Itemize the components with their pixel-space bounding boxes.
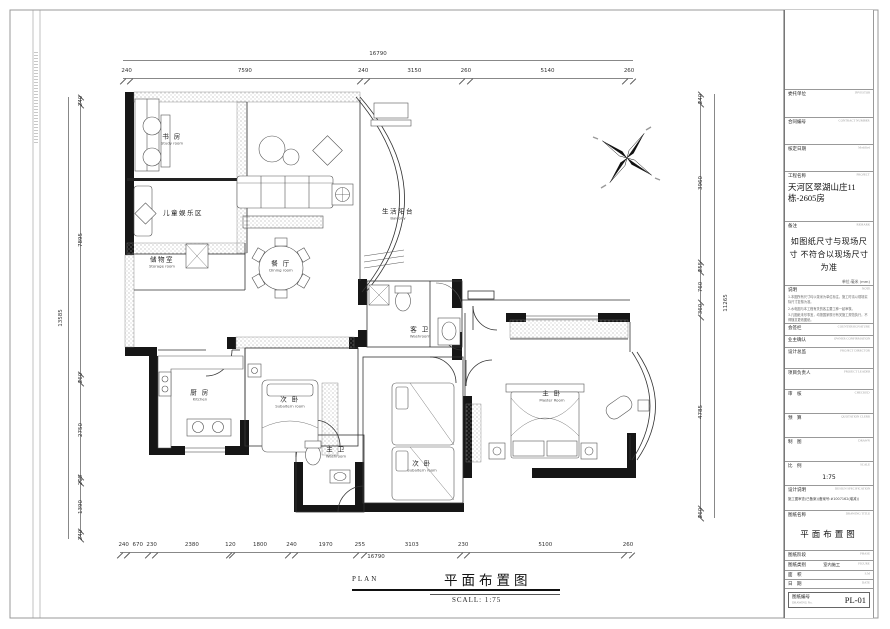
dimension-value: 230 <box>458 542 469 548</box>
dimension-value: 1800 <box>253 542 267 548</box>
drawn-label-en: DRAWN <box>858 439 870 443</box>
drawing-number-value: PL-01 <box>845 595 866 605</box>
title-block-investor: 委托单位 INVESTOR <box>785 89 873 117</box>
quotation-label-cn: 预 算 <box>788 415 802 421</box>
dimension-value: 240 <box>121 68 132 74</box>
number-label-cn: 图纸编号 <box>792 595 815 601</box>
footer-drawing-title: 平面布置图 <box>444 569 532 589</box>
dimension-value: 255 <box>355 542 366 548</box>
footer-plan-label: PLAN <box>352 575 378 583</box>
project-label-cn: 工程名称 <box>788 173 806 179</box>
footer-scale: SCALL: 1:75 <box>452 596 501 604</box>
contract-label-cn: 合同编号 <box>788 119 806 125</box>
director-label-en: PROJECT DIRECTOR <box>840 349 870 353</box>
note-label-en: NOTE <box>862 287 870 291</box>
dimension-value: 360 <box>698 304 704 315</box>
dimension-value: 670 <box>132 542 143 548</box>
margin-copyright-note <box>34 52 38 144</box>
checked-label-cn: 审 核 <box>788 391 802 397</box>
title-block-contract: 合同编号 CONTRACT NUMBER <box>785 117 873 144</box>
furniture <box>134 99 649 500</box>
design-spec-label-en: DESIGN SPECIFICATION <box>835 487 870 491</box>
drawing-title-label-cn: 图纸名称 <box>788 512 806 518</box>
drawing-sheet: 书 房 Study room 儿童娱乐区 储物室 Storage room 餐 … <box>0 0 890 629</box>
dimension-value: 3960 <box>698 176 704 190</box>
contract-label-en: CONTRACT NUMBER <box>839 119 870 123</box>
dimension-total-bottom: 16790 <box>120 554 632 560</box>
note-line-1: 1.本图所有尺寸均以毫米为单位标注，施工时请以现场实际尺寸复核为准。 <box>788 295 870 305</box>
remark-label-cn: 备注 <box>788 223 797 229</box>
dimension-value: 760 <box>698 282 704 293</box>
design-spec-value: 施工图审查(已备案)(备案号:#1007162(增减)) <box>788 496 870 501</box>
owner-label-en: OWNER CONFIRMATION <box>834 337 870 341</box>
title-block-remark: 备注 REMARK 如图纸尺寸与现场尺寸 不符合以现场尺寸为准 单位:毫米 (m… <box>785 221 873 285</box>
drawing-title-label-en: DRAWING TITLE <box>846 512 870 516</box>
leader-label-cn: 项目负责人 <box>788 370 811 376</box>
dimension-value: 240 <box>78 96 84 107</box>
note-label-cn: 说明 <box>788 287 797 293</box>
dimension-value: 260 <box>461 68 472 74</box>
dimension-line-top-total <box>123 60 633 61</box>
title-block-area: 面 积 S.M <box>785 570 873 579</box>
category-value: 室内施工 <box>823 562 840 568</box>
floor-plan-drawing <box>0 0 890 629</box>
dimension-value: 240 <box>118 542 129 548</box>
dimension-row-bottom: 2406702302380120180024019702553103230510… <box>120 540 632 553</box>
modified-label-cn: 核定日期 <box>788 146 806 152</box>
dimension-value: 260 <box>624 68 635 74</box>
dimension-line-left-total <box>68 97 69 539</box>
dimension-value: 1390 <box>78 500 84 514</box>
number-label-en: DRAWING No. <box>792 601 812 605</box>
drawing-number-box: 图纸编号 DRAWING No. PL-01 <box>788 592 870 608</box>
title-block-countersign: 会签栏 COUNTERSIGNATURE <box>785 323 873 335</box>
dimension-value: 205 <box>78 475 84 486</box>
dimension-value: 260 <box>623 542 634 548</box>
dimension-row-right: 24039602557603604785260 <box>700 94 713 518</box>
title-block-director: 设计总监 PROJECT DIRECTOR <box>785 347 873 368</box>
dimension-value: 120 <box>225 542 236 548</box>
dimension-value: 4785 <box>698 405 704 419</box>
area-label-en: S.M <box>865 572 870 576</box>
title-block-leader: 项目负责人 PROJECT LEADER <box>785 368 873 389</box>
title-block-project: 工程名称 PROJECT 天河区翠湖山庄11栋-2605房 <box>785 171 873 221</box>
dimension-value: 260 <box>698 508 704 519</box>
title-block-drawn: 制 图 DRAWN <box>785 437 873 461</box>
title-block-modified: 核定日期 Modified <box>785 144 873 171</box>
design-spec-label-cn: 设计说明 <box>788 487 806 493</box>
dimension-value: 7590 <box>238 68 252 74</box>
footer-rule-thick <box>352 589 560 591</box>
area-label-cn: 面 积 <box>788 572 802 578</box>
title-block-spacer <box>785 10 873 89</box>
scale-label-en: SCALE <box>860 463 870 467</box>
title-block-drawing-title: 图纸名称 DRAWING TITLE 平面布置图 <box>785 510 873 550</box>
checked-label-en: CHECKED <box>855 391 870 395</box>
project-label-en: PROJECT <box>857 173 870 177</box>
dimension-value: 1970 <box>319 542 333 548</box>
dimension-total-top: 16790 <box>123 51 633 57</box>
investor-label-en: INVESTOR <box>854 91 870 95</box>
dimension-value: 240 <box>286 542 297 548</box>
title-block-phase: 图纸阶段 PHASE <box>785 550 873 560</box>
title-block-note: 说明 NOTE 1.本图所有尺寸均以毫米为单位标注，施工时请以现场实际尺寸复核为… <box>785 285 873 323</box>
owner-label-cn: 业主确认 <box>788 337 806 343</box>
leader-label-en: PROJECT LEADER <box>844 370 870 374</box>
date-label-cn: 日 期 <box>788 581 802 587</box>
dimension-row-top: 240759024031502605140260 <box>123 66 633 79</box>
quotation-label-en: QUOTATION CLERK <box>841 415 870 419</box>
category-label-cn: 图纸类别 <box>788 562 806 568</box>
title-block-quotation: 预 算 QUOTATION CLERK <box>785 413 873 437</box>
dimension-value: 3150 <box>407 68 421 74</box>
title-block-checked: 审 核 CHECKED <box>785 389 873 413</box>
dimension-value: 2380 <box>185 542 199 548</box>
title-block-scale: 比 例 SCALE 1:75 <box>785 461 873 485</box>
note-line-3: 3.凡图纸未尽事宜，均按国家现行有关施工规范执行，不得随意更改图纸。 <box>788 313 870 323</box>
dimension-value: 255 <box>698 262 704 273</box>
dimension-value: 240 <box>358 68 369 74</box>
dimension-row-left: 240789526027502051390240 <box>80 97 93 539</box>
scale-value: 1:75 <box>788 474 870 481</box>
title-block-design-spec: 设计说明 DESIGN SPECIFICATION 施工图审查(已备案)(备案号… <box>785 485 873 510</box>
countersign-label-en: COUNTERSIGNATURE <box>838 325 870 329</box>
title-block-date: 日 期 DATE <box>785 579 873 588</box>
dimension-total-right: 11265 <box>723 294 729 312</box>
remark-label-en: REMARK <box>857 223 870 227</box>
category-label-en: FIGURE <box>859 562 870 566</box>
date-label-en: DATE <box>862 581 870 585</box>
modified-label-en: Modified <box>858 146 870 150</box>
note-line-2: 2.水电图与本工程有关的各主要工种一起审核。 <box>788 307 870 312</box>
dimension-value: 7895 <box>78 233 84 247</box>
drawn-label-cn: 制 图 <box>788 439 802 445</box>
phase-label-en: PHASE <box>860 552 870 556</box>
countersign-label-cn: 会签栏 <box>788 325 802 331</box>
dimension-value: 260 <box>78 373 84 384</box>
dimension-value: 240 <box>78 530 84 541</box>
title-block-owner: 业主确认 OWNER CONFIRMATION <box>785 335 873 347</box>
dimension-value: 2750 <box>78 423 84 437</box>
title-block-number: 图纸编号 DRAWING No. PL-01 <box>785 588 873 618</box>
dimension-value: 5140 <box>540 68 554 74</box>
dimension-value: 3103 <box>405 542 419 548</box>
footer-rule-thin <box>430 594 560 595</box>
dimension-value: 230 <box>146 542 157 548</box>
director-label-cn: 设计总监 <box>788 349 806 355</box>
dimension-value: 240 <box>698 94 704 105</box>
title-block-category: 图纸类别 室内施工 FIGURE <box>785 560 873 570</box>
remark-text: 如图纸尺寸与现场尺寸 不符合以现场尺寸为准 <box>788 236 870 274</box>
investor-label-cn: 委托单位 <box>788 91 806 97</box>
drawing-title-value: 平面布置图 <box>788 528 870 540</box>
dimension-total-left: 13585 <box>58 309 64 327</box>
dimension-line-right-total <box>714 94 715 518</box>
title-block: 委托单位 INVESTOR 合同编号 CONTRACT NUMBER 核定日期 … <box>784 10 874 618</box>
scale-label-cn: 比 例 <box>788 463 802 469</box>
north-compass-icon <box>593 127 660 188</box>
phase-label-cn: 图纸阶段 <box>788 552 806 558</box>
dimension-value: 5100 <box>538 542 552 548</box>
project-name: 天河区翠湖山庄11栋-2605房 <box>788 182 870 204</box>
